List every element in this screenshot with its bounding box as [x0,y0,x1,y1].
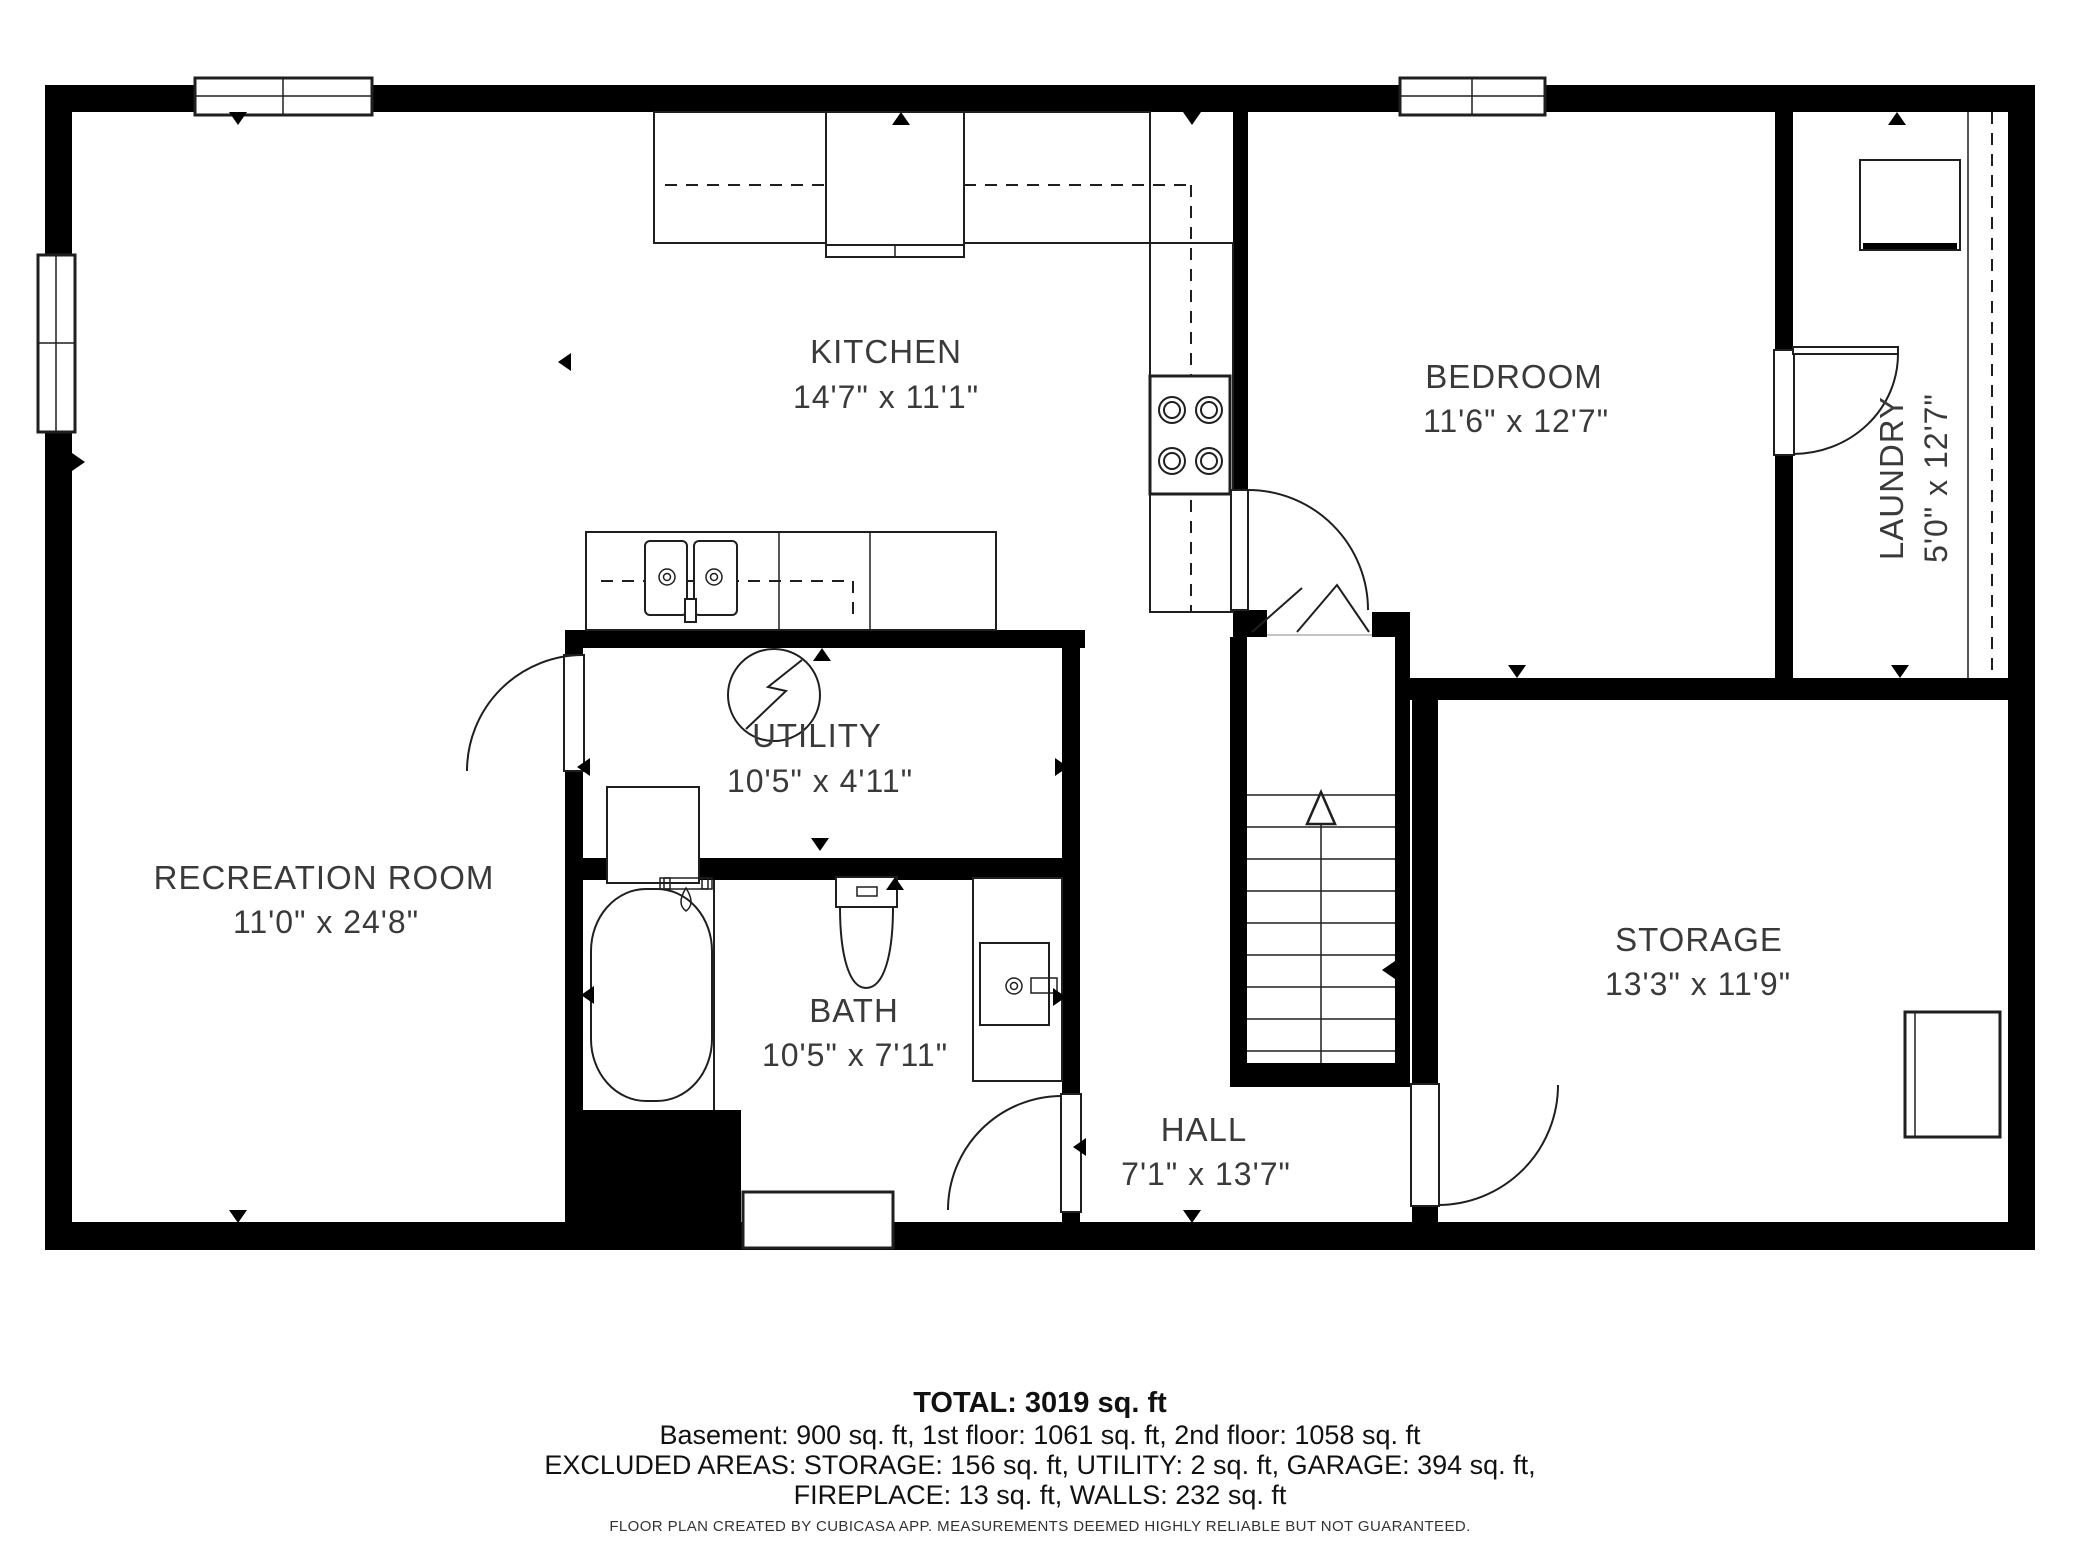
summary-disclaimer: FLOOR PLAN CREATED BY CUBICASA APP. MEAS… [609,1518,1470,1535]
room-label-kitchen: KITCHEN [810,333,962,370]
bath-door-icon [948,1094,1081,1212]
room-dims-bath: 10'5" x 7'11" [762,1037,948,1073]
room-label-bath: BATH [809,992,899,1029]
vanity-sink-icon [973,878,1062,1081]
room-dims-hall: 7'1" x 13'7" [1121,1156,1291,1192]
fireplace-mass [565,1110,741,1250]
room-dims-bedroom: 11'6" x 12'7" [1423,403,1609,439]
storage-door-icon [1411,1084,1558,1206]
stairs-up-arrow [1307,792,1335,824]
bedroom-door-icon [1231,490,1368,610]
storage-fixtures [1905,1012,2000,1137]
washer-icon [1860,160,1960,250]
room-label-laundry: LAUNDRY [1873,396,1910,560]
room-label-recreation: RECREATION ROOM [154,859,495,896]
room-dims-laundry: 5'0" x 12'7" [1918,393,1954,563]
floor-plan: KITCHEN 14'7" x 11'1" BEDROOM 11'6" x 12… [0,0,2080,1560]
sink-counter [586,532,996,630]
summary-breakdown: Basement: 900 sq. ft, 1st floor: 1061 sq… [660,1420,1421,1450]
window-icon [195,78,372,115]
window-icon [38,255,75,432]
room-dims-kitchen: 14'7" x 11'1" [793,379,979,415]
bathtub-icon [591,878,712,1101]
summary: TOTAL: 3019 sq. ft Basement: 900 sq. ft,… [544,1387,1535,1535]
room-label-utility: UTILITY [752,717,882,754]
summary-excluded-2: FIREPLACE: 13 sq. ft, WALLS: 232 sq. ft [794,1480,1287,1510]
stairs-icon [1247,585,1395,1063]
room-label-hall: HALL [1161,1111,1248,1148]
bay-window [743,1192,893,1248]
summary-excluded-1: EXCLUDED AREAS: STORAGE: 156 sq. ft, UTI… [544,1450,1535,1480]
window-icon [1400,78,1545,115]
toilet-icon [836,877,897,988]
room-dims-storage: 13'3" x 11'9" [1605,966,1791,1002]
water-heater-icon [607,787,699,883]
storage-box [1905,1012,2000,1137]
stair-door-icon [1252,585,1369,632]
fridge-icon [826,112,964,257]
room-dims-recreation: 11'0" x 24'8" [233,904,419,940]
utility-door-icon [467,655,584,771]
room-label-bedroom: BEDROOM [1425,358,1603,395]
summary-total: TOTAL: 3019 sq. ft [913,1387,1167,1419]
room-label-storage: STORAGE [1615,921,1783,958]
kitchen-fixtures [586,112,1233,630]
room-dims-utility: 10'5" x 4'11" [727,763,913,799]
stove-icon [1150,376,1230,494]
